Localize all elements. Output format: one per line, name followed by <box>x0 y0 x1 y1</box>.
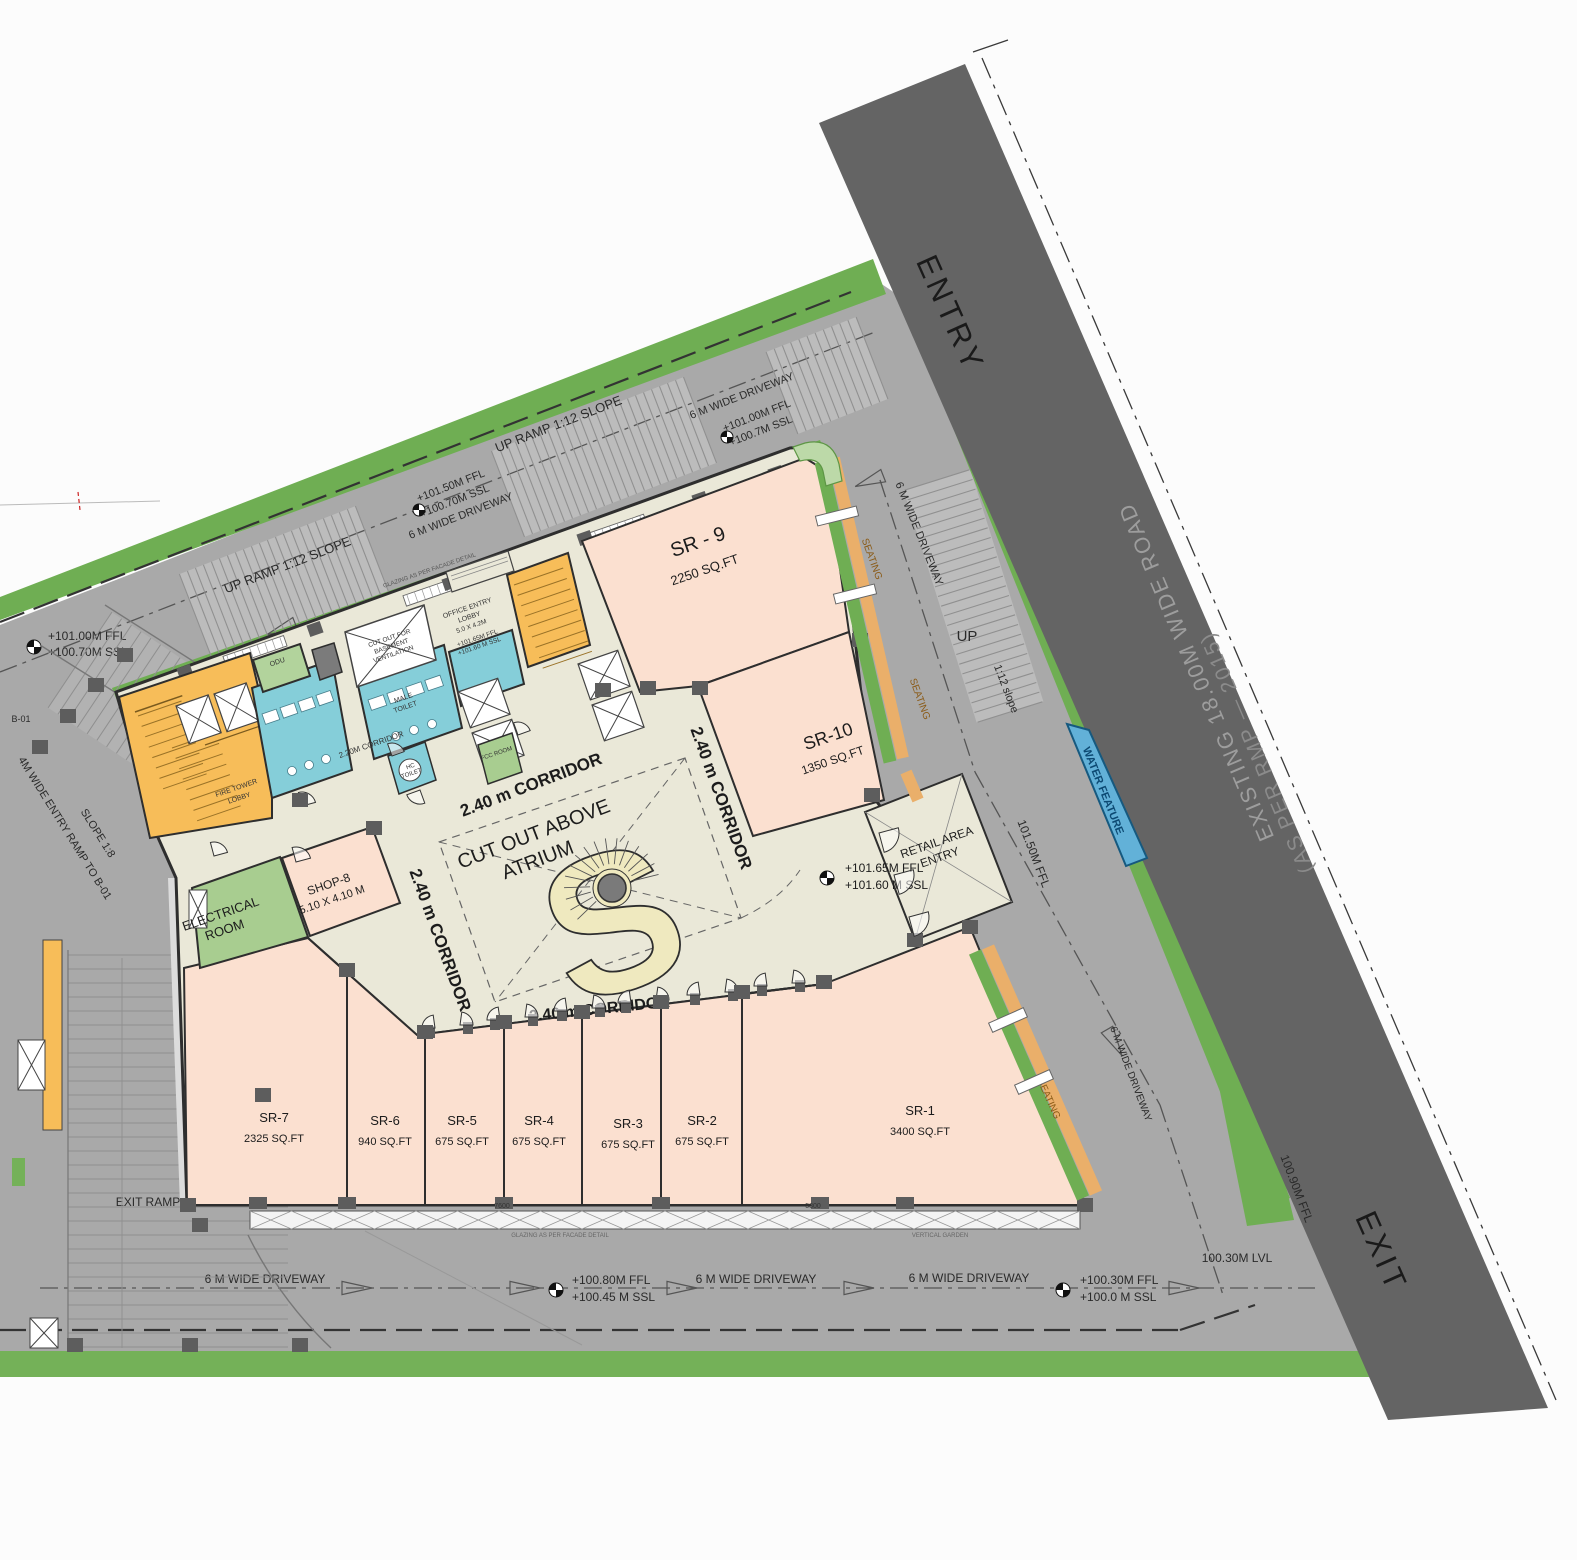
svg-text:VERTICAL GARDEN: VERTICAL GARDEN <box>912 1233 968 1239</box>
svg-text:SR-1: SR-1 <box>905 1103 935 1118</box>
svg-text:940 SQ.FT: 940 SQ.FT <box>358 1136 412 1148</box>
svg-text:675 SQ.FT: 675 SQ.FT <box>601 1139 655 1151</box>
svg-text:SR-7: SR-7 <box>259 1110 289 1125</box>
svg-text:SR-2: SR-2 <box>687 1113 717 1128</box>
svg-text:SR-5: SR-5 <box>447 1113 477 1128</box>
svg-text:7600: 7600 <box>494 1203 510 1210</box>
svg-text:+100.80M FFL: +100.80M FFL <box>572 1273 651 1287</box>
svg-text:6 M WIDE DRIVEWAY: 6 M WIDE DRIVEWAY <box>205 1272 326 1286</box>
svg-text:+100.0 M SSL: +100.0 M SSL <box>1080 1290 1157 1304</box>
svg-text:+100.30M FFL: +100.30M FFL <box>1080 1273 1159 1287</box>
svg-text:675 SQ.FT: 675 SQ.FT <box>435 1136 489 1148</box>
svg-text:SR-3: SR-3 <box>613 1116 643 1131</box>
svg-text:675 SQ.FT: 675 SQ.FT <box>675 1136 729 1148</box>
svg-text:6 M WIDE DRIVEWAY: 6 M WIDE DRIVEWAY <box>909 1271 1030 1285</box>
svg-text:+101.00M FFL: +101.00M FFL <box>48 629 127 643</box>
svg-text:3400 SQ.FT: 3400 SQ.FT <box>890 1126 950 1138</box>
svg-text:675 SQ.FT: 675 SQ.FT <box>512 1136 566 1148</box>
svg-text:5800: 5800 <box>805 1203 821 1210</box>
svg-text:GLAZING AS PER FACADE DETAIL: GLAZING AS PER FACADE DETAIL <box>511 1233 609 1239</box>
svg-text:B-01: B-01 <box>11 714 30 724</box>
svg-text:UP: UP <box>957 628 978 645</box>
svg-text:SR-4: SR-4 <box>524 1113 554 1128</box>
svg-text:SR-6: SR-6 <box>370 1113 400 1128</box>
svg-text:+100.45 M SSL: +100.45 M SSL <box>572 1290 655 1304</box>
svg-text:6 M WIDE DRIVEWAY: 6 M WIDE DRIVEWAY <box>696 1272 817 1286</box>
svg-text:+101.60 M SSL: +101.60 M SSL <box>845 878 928 892</box>
svg-text:2325 SQ.FT: 2325 SQ.FT <box>244 1133 304 1145</box>
svg-text:100.30M LVL: 100.30M LVL <box>1202 1251 1273 1265</box>
